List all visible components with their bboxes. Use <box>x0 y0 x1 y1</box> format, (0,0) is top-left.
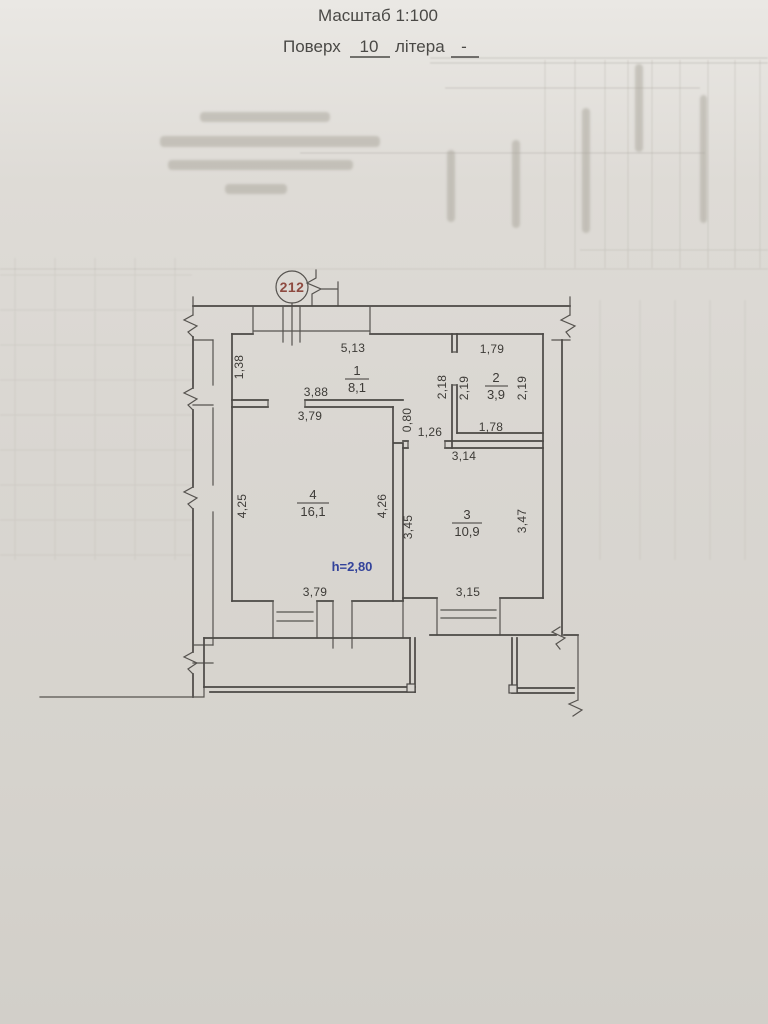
dim-passage-width: 1,26 <box>418 425 443 439</box>
bleedthrough-layer <box>0 58 768 560</box>
dim-room4-right: 4,26 <box>375 494 389 519</box>
room4-room3-wall <box>393 407 403 601</box>
header: Масштаб 1:100 Поверх 10 літера - <box>283 6 479 57</box>
scale-title: Масштаб 1:100 <box>318 6 438 25</box>
dim-room1-bottom: 3,88 <box>304 385 329 399</box>
dim-room3-bottom: 3,15 <box>456 585 481 599</box>
left-wall-caps <box>193 340 213 663</box>
room4-window-door-jambs <box>273 601 403 648</box>
room4-window-sill <box>277 612 313 621</box>
room4-number: 4 <box>309 487 316 502</box>
dim-room3-top: 3,14 <box>452 449 477 463</box>
entry-door-opening <box>253 306 370 342</box>
break-top-right <box>552 315 575 340</box>
balcony2-break-right <box>569 635 582 716</box>
balcony1-corner-post <box>407 684 415 692</box>
bottom-left-extension <box>40 687 204 697</box>
room1-room4-wall <box>232 400 403 407</box>
break-bottom-right-wall <box>552 627 565 649</box>
bleedthrough-text-smudges <box>160 64 707 233</box>
room4-door-jambs <box>268 400 305 407</box>
apartment-number: 212 <box>280 279 305 295</box>
dim-room4-left: 4,25 <box>235 494 249 519</box>
ceiling-height-note: h=2,80 <box>332 559 373 574</box>
dim-room3-left: 3,45 <box>401 515 415 540</box>
balcony2-bottom-glazing <box>512 688 574 693</box>
dim-room2-bottom: 1,78 <box>479 420 504 434</box>
scanned-floor-plan-page: Масштаб 1:100 Поверх 10 літера - 212 <box>0 0 768 1024</box>
dim-room2-left: 2,19 <box>457 376 471 401</box>
dim-hall-left: 2,18 <box>435 375 449 400</box>
room3-window-sill <box>441 610 496 618</box>
dim-room4-top: 3,79 <box>298 409 323 423</box>
balcony2-left-glazing <box>512 638 517 692</box>
room3-window-jambs <box>437 598 500 635</box>
room2-area: 3,9 <box>487 387 505 402</box>
balconies-layer <box>204 635 582 716</box>
room4-area: 16,1 <box>300 504 325 519</box>
room3-area: 10,9 <box>454 524 479 539</box>
floor-label: Поверх <box>283 37 341 56</box>
apartment-number-bubble: 212 <box>276 270 338 345</box>
dim-room2-top: 1,79 <box>480 342 505 356</box>
dim-room2-right: 2,19 <box>515 376 529 401</box>
break-top-left <box>184 315 197 337</box>
break-left-1 <box>184 388 197 410</box>
room3-number: 3 <box>463 507 470 522</box>
room1-area: 8,1 <box>348 380 366 395</box>
dim-room4-bottom: 3,79 <box>303 585 328 599</box>
dim-passage-height: 0,80 <box>400 408 414 433</box>
room3-top-wall <box>403 441 543 448</box>
dim-room1-left: 1,38 <box>232 355 246 380</box>
dim-room1-top: 5,13 <box>341 341 366 355</box>
balcony1-bottom-glazing <box>204 687 415 692</box>
dim-room3-right: 3,47 <box>515 509 529 534</box>
break-left-2 <box>184 487 197 509</box>
room2-number: 2 <box>492 370 499 385</box>
letter-label: літера <box>395 37 445 56</box>
dimensions-layer: 5,13 1,38 3,88 3,79 1,79 2,18 2,19 2,19 … <box>232 341 529 599</box>
floor-value: 10 <box>360 37 379 56</box>
letter-value: - <box>461 37 467 56</box>
balcony2-corner-post <box>509 685 517 693</box>
floor-plan-canvas: Масштаб 1:100 Поверх 10 літера - 212 <box>0 0 768 1024</box>
room3-door-jambs <box>408 441 445 448</box>
corridor-break-symbol <box>307 270 338 306</box>
room1-number: 1 <box>353 363 360 378</box>
